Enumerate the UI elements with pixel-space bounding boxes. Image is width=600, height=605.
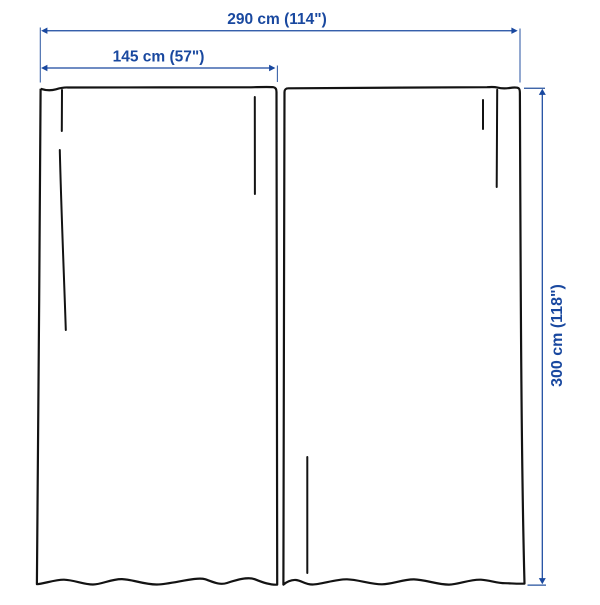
svg-text:290 cm (114"): 290 cm (114") xyxy=(227,11,327,28)
svg-text:145 cm (57"): 145 cm (57") xyxy=(113,48,205,65)
svg-text:300 cm (118"): 300 cm (118") xyxy=(549,284,566,387)
